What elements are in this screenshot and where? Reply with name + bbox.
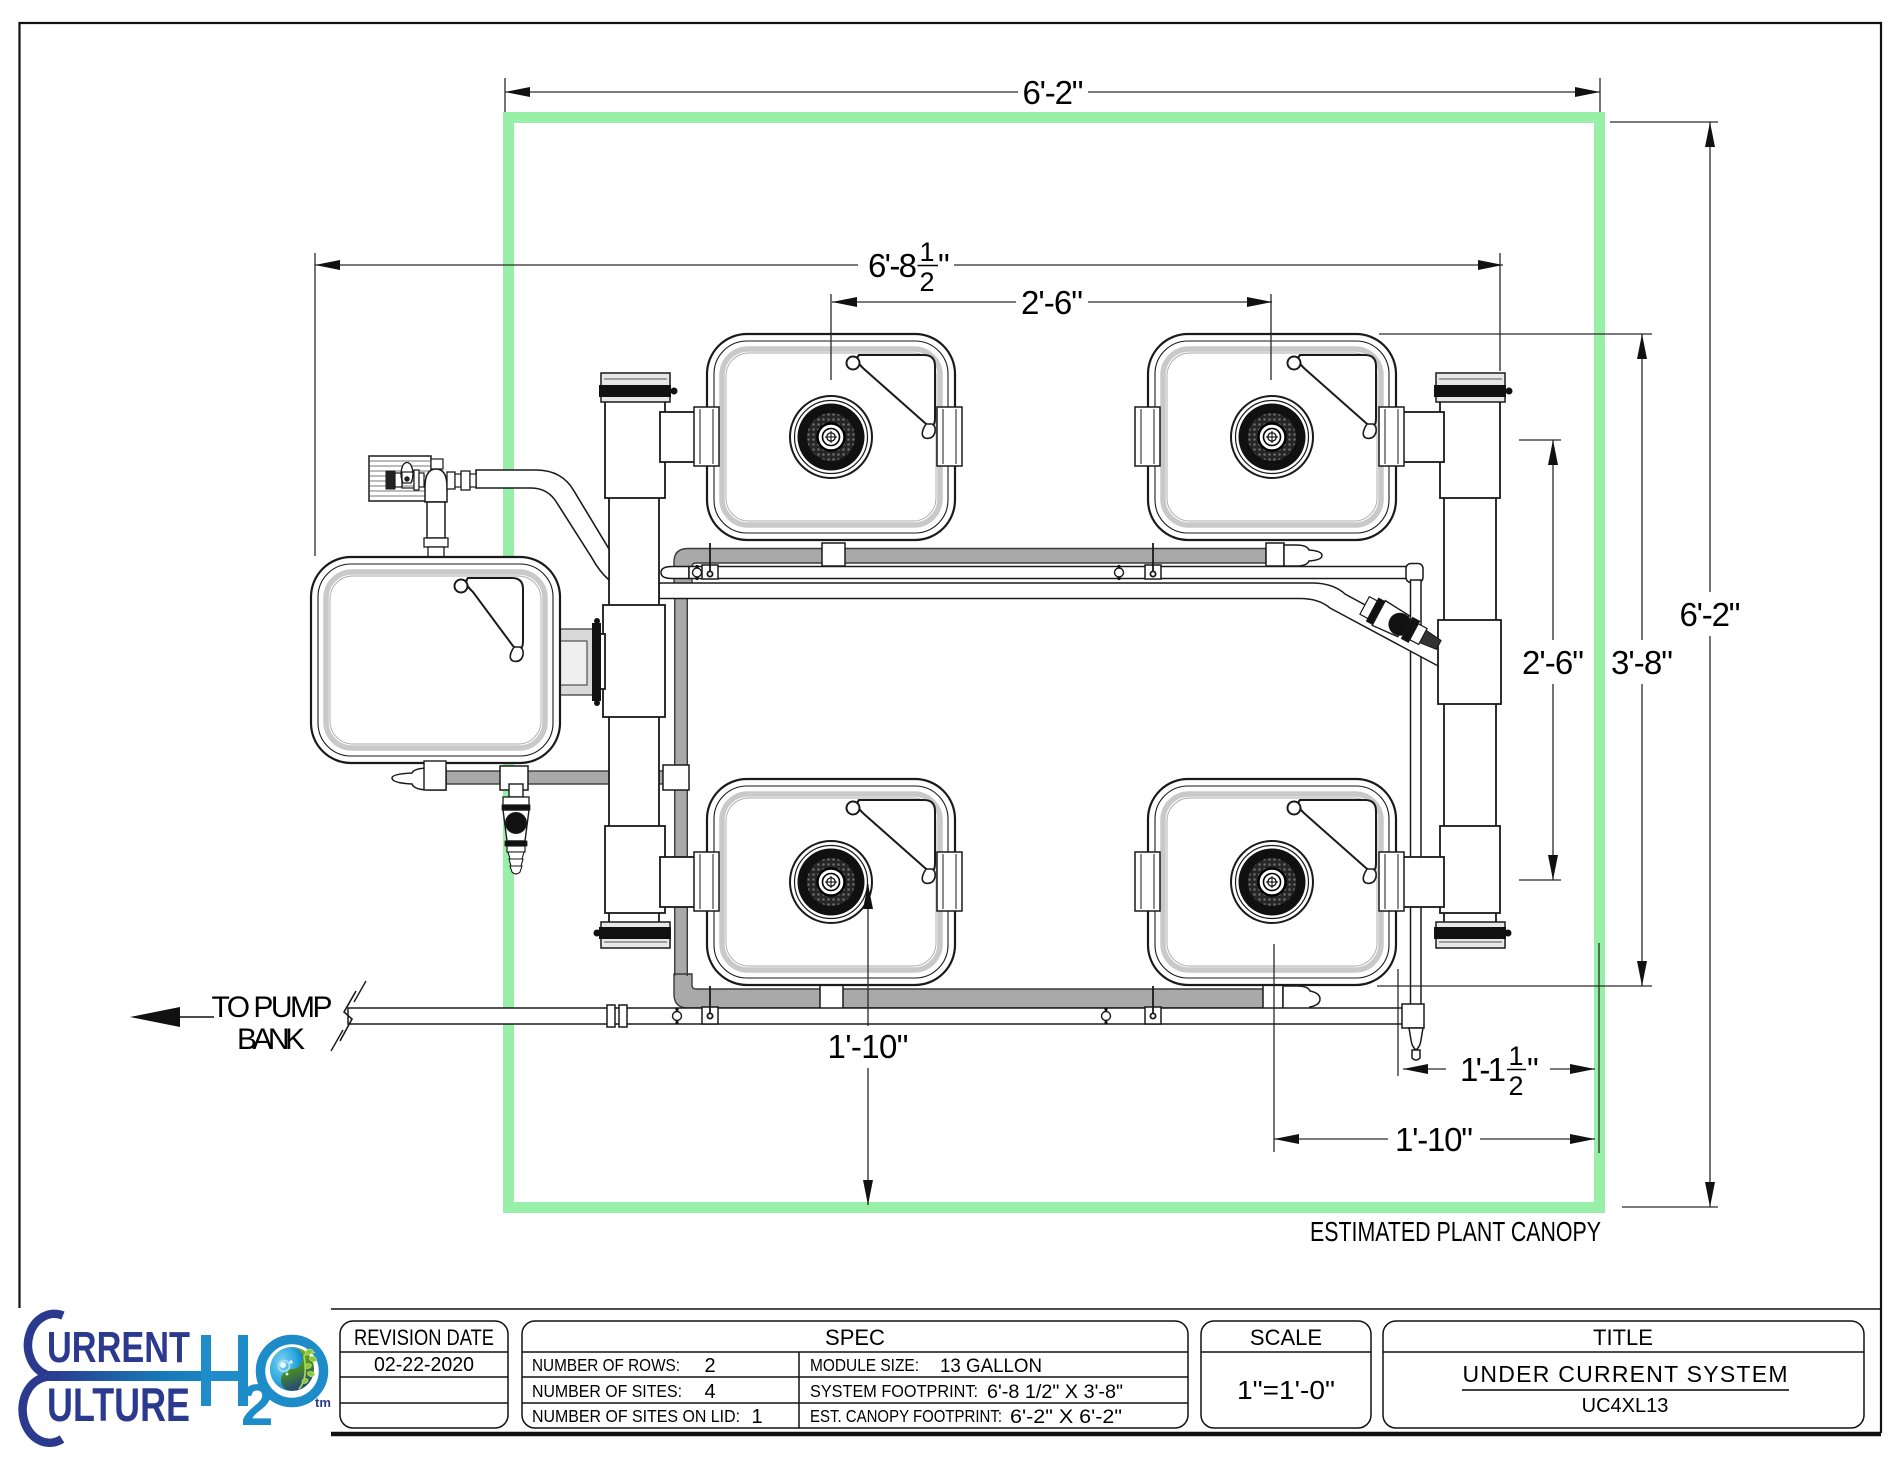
svg-text:2: 2: [241, 1373, 273, 1438]
svg-text:2'-6": 2'-6": [1522, 644, 1584, 681]
svg-text:1: 1: [1508, 1041, 1523, 1071]
svg-text:3'-8": 3'-8": [1611, 644, 1673, 681]
svg-text:1: 1: [751, 1406, 762, 1428]
svg-text:TO PUMP: TO PUMP: [212, 991, 333, 1024]
svg-text:tm: tm: [315, 1395, 331, 1410]
svg-text:EST. CANOPY FOOTPRINT:: EST. CANOPY FOOTPRINT:: [810, 1406, 1002, 1426]
svg-text:TITLE: TITLE: [1593, 1325, 1653, 1350]
svg-text:6'-8: 6'-8: [868, 247, 917, 284]
svg-text:6'-2": 6'-2": [1023, 74, 1084, 111]
svg-text:02-22-2020: 02-22-2020: [374, 1354, 474, 1376]
svg-text:1"=1'-0": 1"=1'-0": [1237, 1375, 1335, 1405]
svg-text:2: 2: [1508, 1071, 1523, 1101]
svg-text:UC4XL13: UC4XL13: [1582, 1395, 1669, 1417]
svg-text:MODULE SIZE:: MODULE SIZE:: [810, 1355, 919, 1375]
svg-text:SYSTEM FOOTPRINT:: SYSTEM FOOTPRINT:: [810, 1381, 978, 1401]
svg-text:SPEC: SPEC: [825, 1325, 885, 1350]
svg-text:": ": [938, 247, 950, 284]
svg-text:6'-2" X 6'-2": 6'-2" X 6'-2": [1010, 1407, 1122, 1428]
svg-text:13 GALLON: 13 GALLON: [940, 1356, 1042, 1377]
svg-text:6'-2": 6'-2": [1680, 596, 1741, 633]
svg-text:BANK: BANK: [237, 1023, 305, 1056]
svg-text:REVISION DATE: REVISION DATE: [354, 1325, 494, 1350]
svg-text:NUMBER OF ROWS:: NUMBER OF ROWS:: [532, 1355, 680, 1375]
svg-text:NUMBER OF SITES:: NUMBER OF SITES:: [532, 1381, 682, 1401]
svg-text:UNDER CURRENT SYSTEM: UNDER CURRENT SYSTEM: [1463, 1361, 1788, 1387]
svg-text:1'-10": 1'-10": [1395, 1121, 1473, 1158]
svg-text:": ": [1527, 1051, 1539, 1088]
svg-text:6'-8 1/2" X 3'-8": 6'-8 1/2" X 3'-8": [987, 1382, 1123, 1403]
svg-text:ESTIMATED PLANT CANOPY: ESTIMATED PLANT CANOPY: [1310, 1216, 1601, 1247]
svg-text:2: 2: [704, 1355, 715, 1377]
svg-text:2'-6": 2'-6": [1021, 284, 1083, 321]
svg-text:1'-10": 1'-10": [828, 1028, 909, 1065]
svg-text:SCALE: SCALE: [1250, 1325, 1322, 1350]
svg-text:4: 4: [704, 1381, 715, 1403]
svg-text:2: 2: [919, 267, 934, 297]
svg-text:URRENT: URRENT: [47, 1323, 190, 1372]
svg-text:NUMBER OF SITES ON LID:: NUMBER OF SITES ON LID:: [532, 1406, 740, 1426]
svg-text:1: 1: [919, 237, 934, 267]
svg-text:ULTURE: ULTURE: [47, 1378, 190, 1431]
svg-text:1'-1: 1'-1: [1460, 1051, 1506, 1088]
